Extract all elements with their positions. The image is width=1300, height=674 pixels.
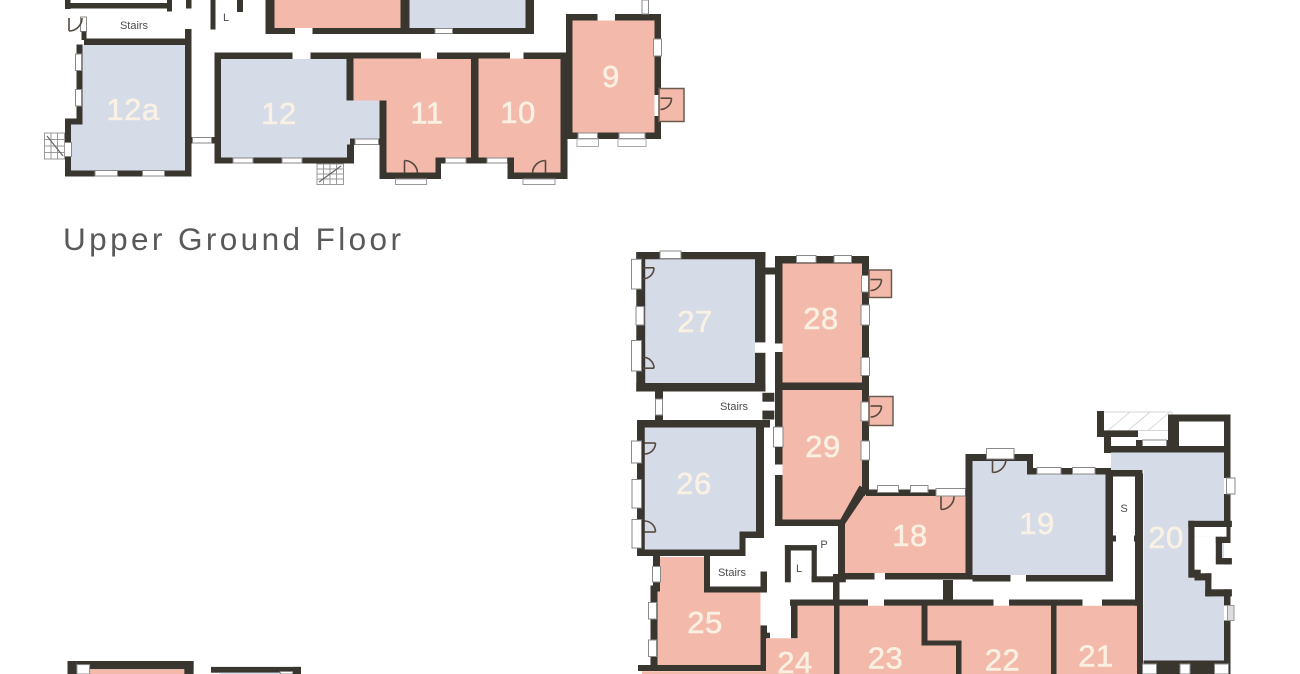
- svg-text:9: 9: [602, 59, 620, 94]
- svg-text:P: P: [820, 539, 827, 551]
- svg-text:L: L: [223, 12, 229, 24]
- svg-text:10: 10: [500, 95, 535, 130]
- svg-text:Stairs: Stairs: [720, 401, 749, 413]
- svg-text:21: 21: [1078, 639, 1113, 674]
- svg-text:26: 26: [676, 466, 711, 501]
- svg-text:27: 27: [677, 304, 712, 339]
- svg-text:S: S: [1120, 503, 1127, 515]
- svg-text:12a: 12a: [106, 92, 159, 127]
- svg-text:Stairs: Stairs: [120, 20, 149, 32]
- svg-text:22: 22: [985, 643, 1020, 674]
- svg-text:28: 28: [803, 301, 838, 336]
- svg-text:19: 19: [1019, 506, 1054, 541]
- svg-text:18: 18: [892, 518, 927, 553]
- svg-text:Stairs: Stairs: [718, 567, 747, 579]
- svg-text:23: 23: [868, 641, 903, 674]
- svg-text:29: 29: [805, 429, 840, 464]
- svg-text:20: 20: [1148, 520, 1183, 555]
- svg-text:12: 12: [261, 96, 296, 131]
- svg-text:24: 24: [777, 645, 812, 674]
- svg-text:L: L: [796, 563, 802, 575]
- svg-text:11: 11: [410, 96, 443, 131]
- svg-text:Upper Ground Floor: Upper Ground Floor: [63, 221, 404, 257]
- svg-text:25: 25: [687, 605, 722, 640]
